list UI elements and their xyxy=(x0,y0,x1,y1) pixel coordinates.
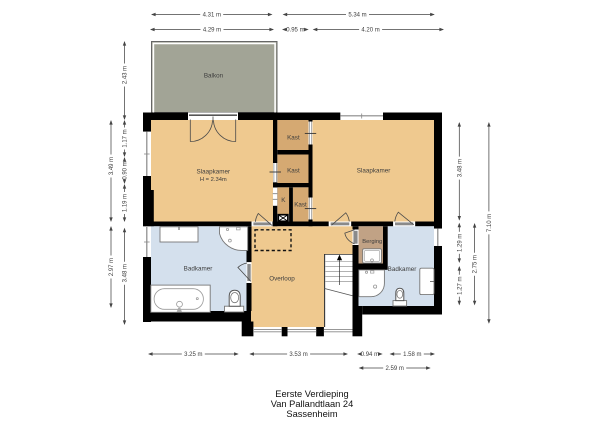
svg-text:Sassenheim: Sassenheim xyxy=(286,409,337,419)
svg-text:2.59 m: 2.59 m xyxy=(386,366,404,372)
svg-text:Kast: Kast xyxy=(294,202,307,209)
svg-text:Eerste Verdieping: Eerste Verdieping xyxy=(275,389,348,399)
svg-text:Van Pallandtlaan 24: Van Pallandtlaan 24 xyxy=(271,399,354,409)
svg-text:Berging: Berging xyxy=(362,239,382,245)
svg-text:Kast: Kast xyxy=(287,135,300,142)
svg-text:H = 2.34m: H = 2.34m xyxy=(200,177,227,183)
svg-text:1.19 m: 1.19 m xyxy=(123,194,129,212)
svg-text:2.43 m: 2.43 m xyxy=(123,66,129,84)
svg-text:Badkamer: Badkamer xyxy=(388,266,417,273)
svg-text:3.48 m: 3.48 m xyxy=(123,264,129,282)
svg-text:4.29 m: 4.29 m xyxy=(203,28,221,34)
svg-text:Slaapkamer: Slaapkamer xyxy=(196,169,230,176)
svg-text:3.25 m: 3.25 m xyxy=(184,352,202,358)
svg-text:Slaapkamer: Slaapkamer xyxy=(357,168,391,175)
svg-text:4.20 m: 4.20 m xyxy=(361,28,379,34)
svg-text:7.10 m: 7.10 m xyxy=(487,214,493,232)
svg-text:Overloop: Overloop xyxy=(269,275,295,282)
svg-text:3.48 m: 3.48 m xyxy=(457,159,463,177)
svg-text:1.58 m: 1.58 m xyxy=(403,352,421,358)
svg-text:1.27 m: 1.27 m xyxy=(457,277,463,295)
svg-text:0.90 m: 0.90 m xyxy=(123,161,129,179)
svg-text:2.75 m: 2.75 m xyxy=(473,255,479,273)
svg-text:3.53 m: 3.53 m xyxy=(289,352,307,358)
svg-text:4.31 m: 4.31 m xyxy=(203,13,221,19)
svg-text:0.94 m: 0.94 m xyxy=(361,352,379,358)
svg-text:1.29 m: 1.29 m xyxy=(457,234,463,252)
svg-text:5.34 m: 5.34 m xyxy=(348,13,366,19)
svg-text:0.95 m: 0.95 m xyxy=(286,28,304,34)
svg-text:Badkamer: Badkamer xyxy=(184,265,213,272)
svg-text:Balkon: Balkon xyxy=(204,73,224,80)
svg-text:1.17 m: 1.17 m xyxy=(123,129,129,147)
svg-text:2.97 m: 2.97 m xyxy=(109,258,115,276)
svg-text:3.49 m: 3.49 m xyxy=(109,157,115,175)
svg-text:Kast: Kast xyxy=(287,167,300,174)
